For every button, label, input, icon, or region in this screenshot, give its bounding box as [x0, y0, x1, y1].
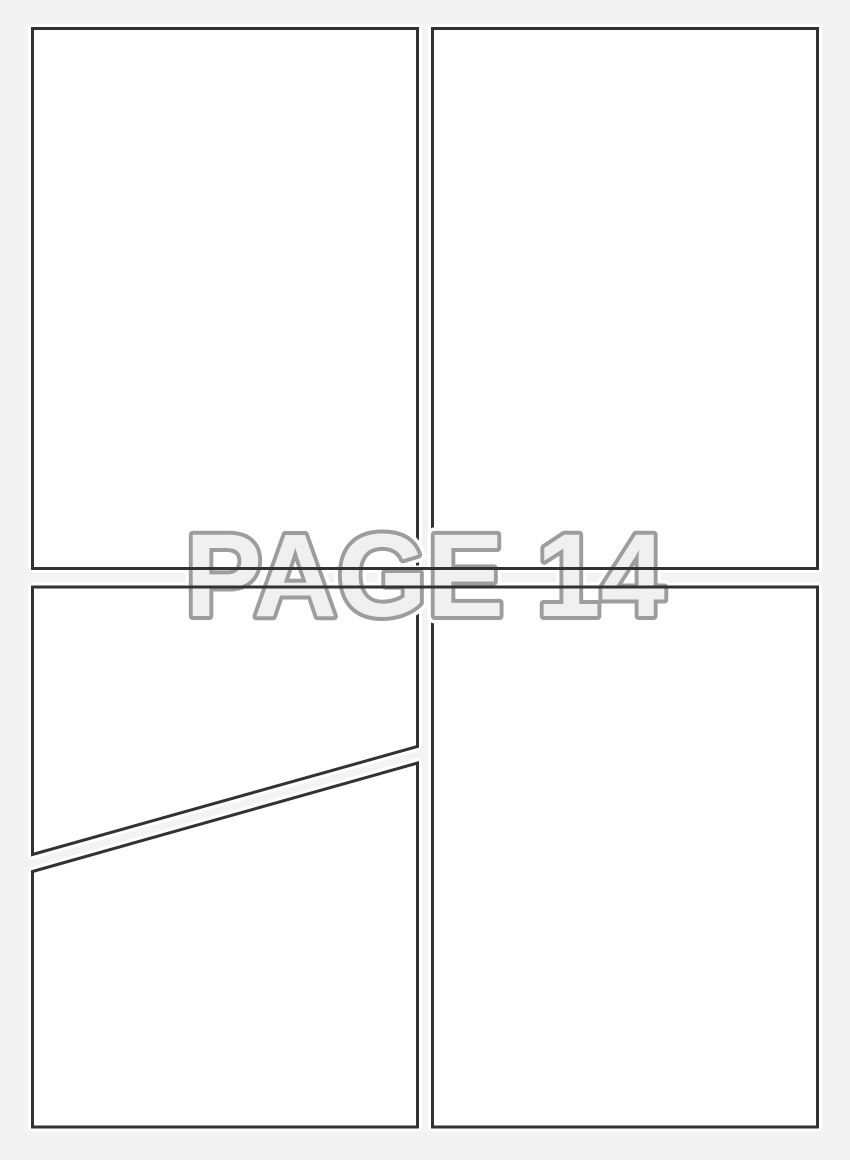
- comic-page-template: PAGE 14 PAGE 14: [0, 0, 850, 1160]
- comic-page-canvas: PAGE 14 PAGE 14: [0, 0, 850, 1160]
- watermark-label: PAGE 14: [185, 510, 665, 642]
- panel-top-left-body: [33, 29, 418, 569]
- panel-top-right-body: [433, 29, 818, 569]
- panel-bottom-right-body: [433, 587, 818, 1127]
- watermark: PAGE 14 PAGE 14: [185, 510, 665, 642]
